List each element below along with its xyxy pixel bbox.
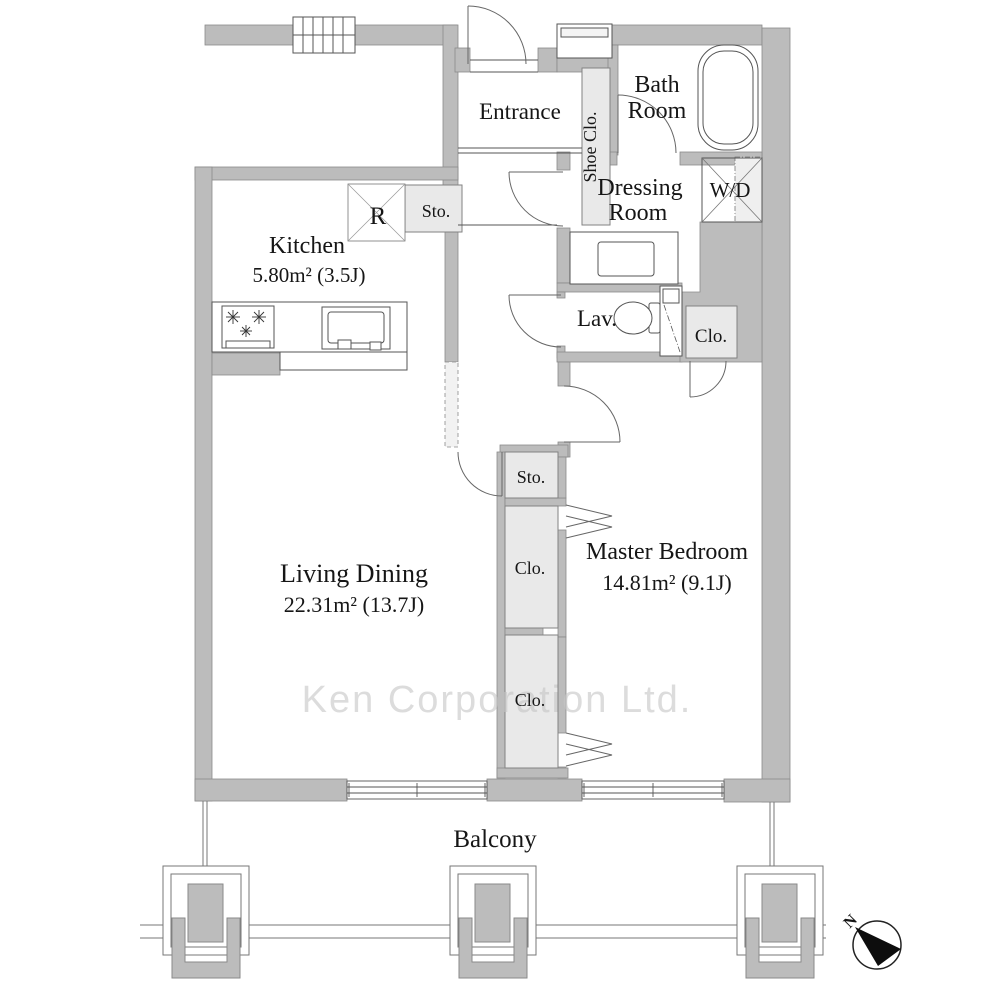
refrigerator-label: R	[370, 203, 387, 230]
meter-box	[557, 24, 612, 58]
folding-door-upper	[566, 505, 612, 538]
compass: N	[841, 911, 901, 969]
vent-grille	[293, 17, 355, 53]
center-storage-label: Sto.	[517, 467, 546, 487]
washbasin	[570, 232, 678, 284]
floor-plan-page: N Ken Corporation Ltd. Entrance Shoe Clo…	[0, 0, 1000, 1000]
bath-room-label-line2: Room	[628, 98, 687, 124]
living-dining-door	[458, 452, 502, 496]
kitchen-area-label: 5.80m² (3.5J)	[252, 263, 365, 287]
master-bedroom-label: Master Bedroom	[586, 539, 748, 565]
master-bedroom-area-label: 14.81m² (9.1J)	[602, 570, 731, 595]
shoe-closet-label: Shoe Clo.	[580, 111, 600, 182]
hall-storage-label: Sto.	[422, 201, 451, 221]
toilet	[614, 286, 682, 356]
watermark: Ken Corporation Ltd.	[302, 679, 693, 721]
dressing-room-label-line2: Room	[609, 200, 668, 226]
washer-dryer-label: W/D	[710, 178, 751, 202]
pillar	[163, 866, 249, 978]
entrance-label: Entrance	[479, 99, 561, 124]
folding-door-lower	[566, 733, 612, 766]
floor-plan-drawing: N Ken Corporation Ltd. Entrance Shoe Clo…	[0, 0, 1000, 1000]
balcony-pillars	[163, 866, 823, 978]
kitchen-half-wall	[445, 362, 458, 447]
closet-upper-label: Clo.	[515, 558, 546, 578]
master-bedroom-window	[582, 781, 724, 799]
bathtub	[698, 45, 758, 150]
closet-lower-label: Clo.	[515, 690, 546, 710]
entrance-door	[468, 6, 526, 64]
lavatory-door	[509, 295, 561, 347]
kitchen-label: Kitchen	[269, 233, 345, 259]
closet-by-lavatory-door	[690, 361, 726, 397]
closet-by-lavatory-label: Clo.	[695, 326, 727, 347]
living-dining-window	[347, 781, 487, 799]
pillar	[737, 866, 823, 978]
master-bedroom-door	[564, 386, 620, 442]
bath-room-label-line1: Bath	[634, 72, 679, 98]
threshold-lines	[458, 60, 582, 225]
living-dining-area-label: 22.31m² (13.7J)	[284, 592, 424, 617]
dressing-room-label-line1: Dressing	[597, 175, 682, 201]
pillar	[450, 866, 536, 978]
living-dining-label: Living Dining	[280, 559, 428, 588]
lavatory-label: Lav.	[577, 306, 617, 331]
balcony-label: Balcony	[453, 826, 537, 853]
dressing-room-door	[509, 172, 563, 226]
